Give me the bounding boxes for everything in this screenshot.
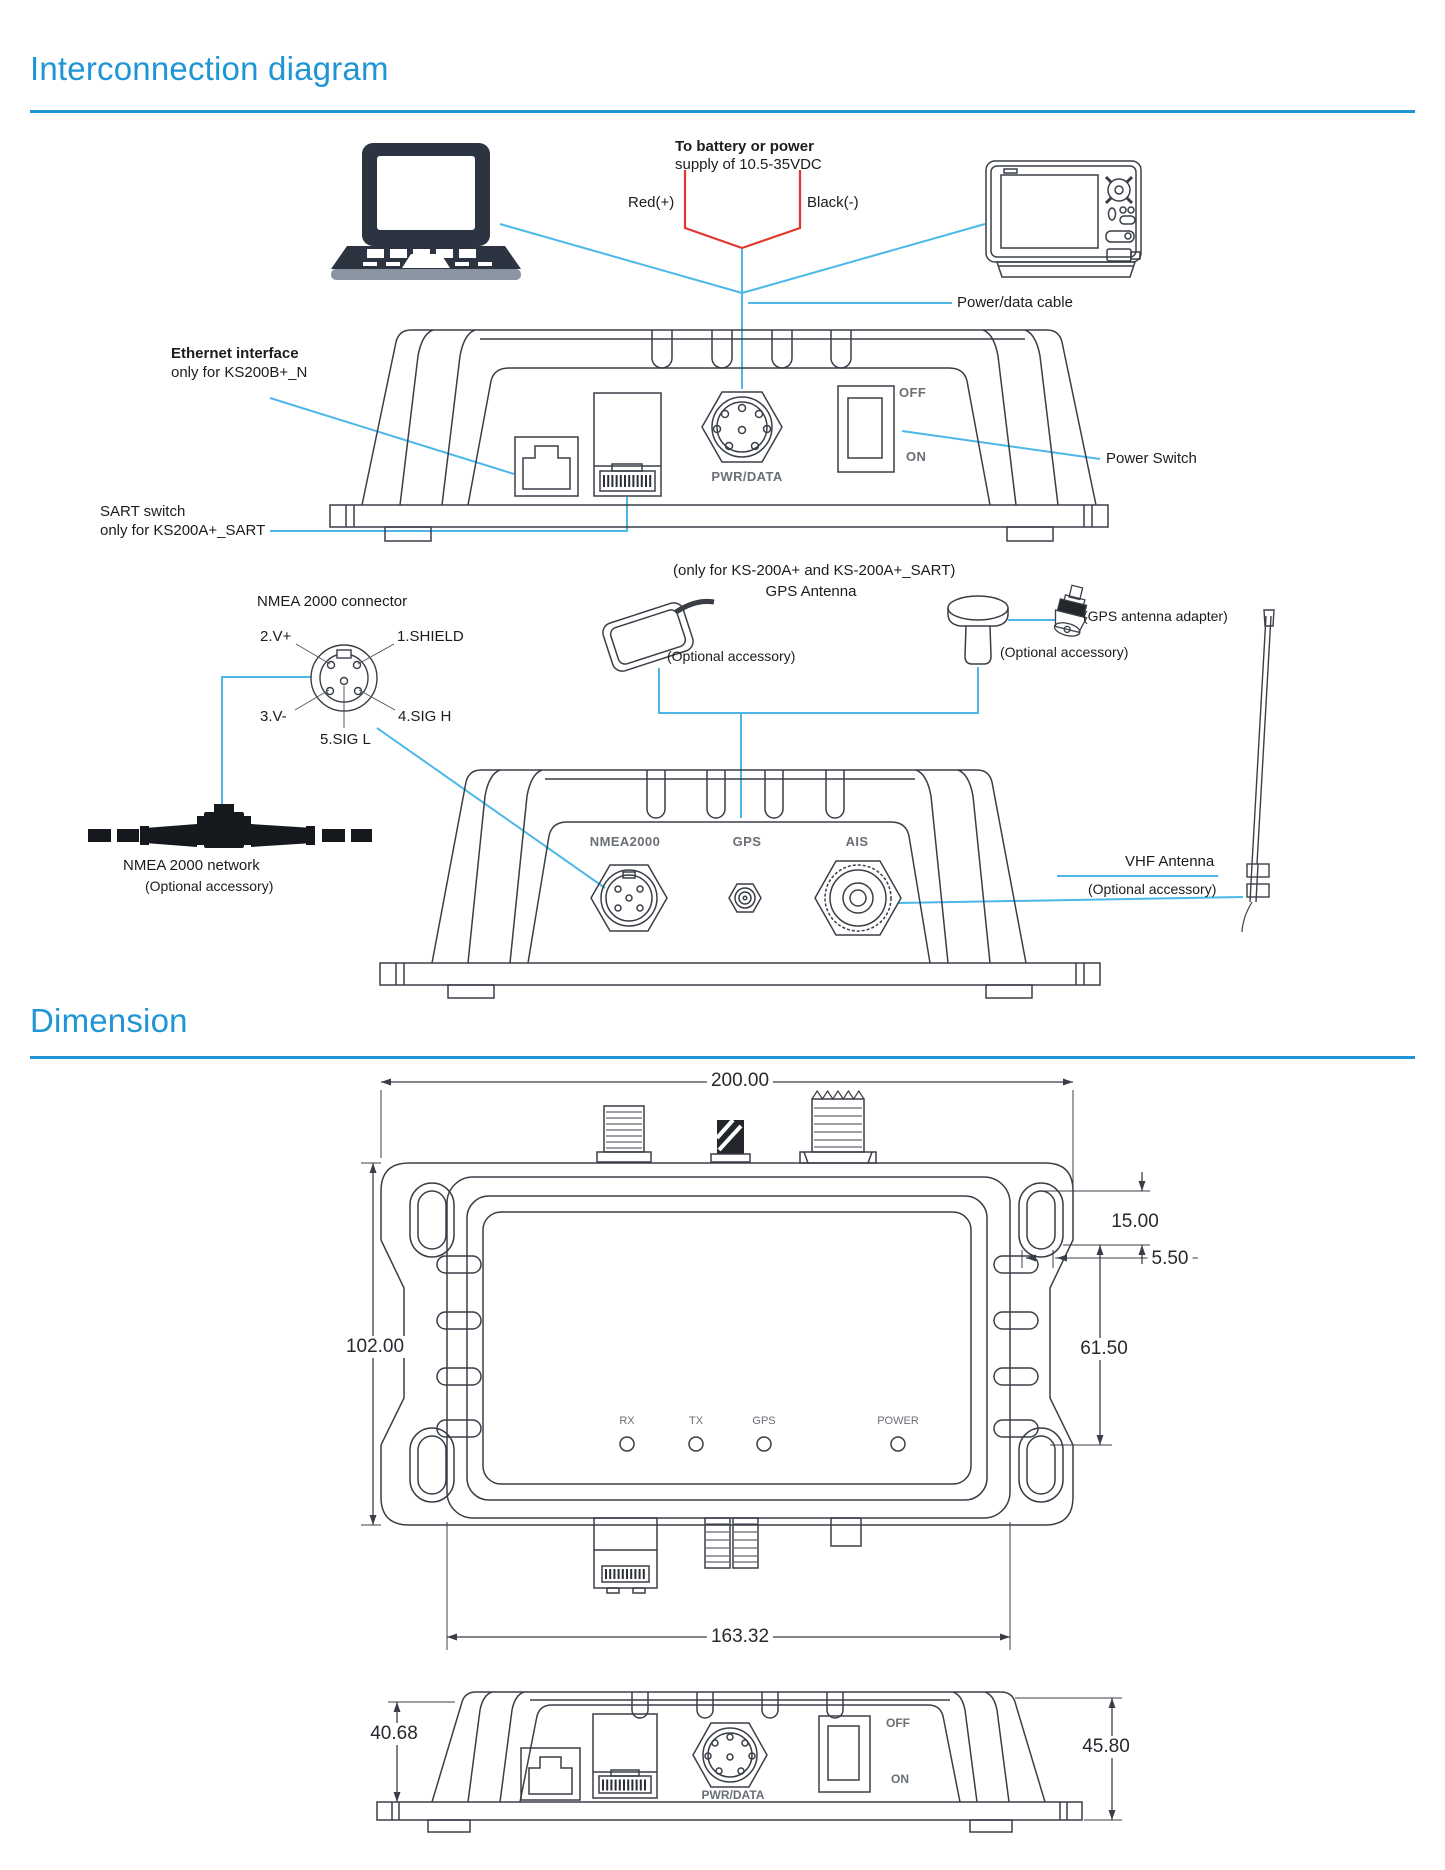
- manual-page: Interconnection diagram Dimension To bat…: [0, 0, 1445, 1870]
- heading-rule-2: [30, 1056, 1415, 1059]
- gps-antenna-title: GPS Antenna: [766, 583, 857, 600]
- laptop-icon: [331, 143, 521, 280]
- sart-label-line1: SART switch: [100, 503, 185, 520]
- led-label-gps: GPS: [752, 1415, 775, 1427]
- top-connectors: [597, 1091, 876, 1163]
- pwr-data-connector: [702, 392, 782, 462]
- vhf-antenna-title: VHF Antenna: [1125, 853, 1214, 870]
- power-wires: [685, 170, 800, 248]
- nmea2000-port: [591, 865, 667, 931]
- rear-on-label: ON: [906, 449, 926, 464]
- front-nmea2000-label: NMEA2000: [590, 834, 660, 849]
- ais-port: [815, 861, 901, 935]
- led-label-power: POWER: [877, 1415, 919, 1427]
- front-ais-label: AIS: [846, 834, 869, 849]
- gps-port: [729, 884, 761, 912]
- heading-rule-1: [30, 110, 1415, 113]
- dimension-rear-view: [377, 1692, 1122, 1832]
- nmea2000-network-icon: [88, 804, 372, 848]
- sart-label-line2: only for KS200A+_SART: [100, 522, 265, 539]
- black-wire-label: Black(-): [807, 194, 859, 211]
- chartplotter-icon: [986, 161, 1141, 277]
- power-data-cable-label: Power/data cable: [957, 294, 1073, 311]
- dim-slot-span: 61.50: [1076, 1338, 1132, 1360]
- gps-adapter-label: (GPS antenna adapter): [1083, 608, 1228, 624]
- vhf-antenna-optional: (Optional accessory): [1088, 881, 1216, 897]
- nmea-pin3-label: 3.V-: [260, 708, 287, 725]
- nmea-network-optional: (Optional accessory): [145, 878, 273, 894]
- nmea-pin2-label: 2.V+: [260, 628, 291, 645]
- power-switch-rear: [819, 1716, 870, 1792]
- device-rear-view: [330, 330, 1108, 541]
- section-title-dimension: Dimension: [30, 1002, 188, 1040]
- dim-rear-left: 40.68: [366, 1723, 422, 1745]
- nmea-pin4-label: 4.SIG H: [398, 708, 451, 725]
- dim-rear-right: 45.80: [1078, 1736, 1134, 1758]
- gps-mushroom-antenna-icon: [948, 596, 1008, 664]
- vhf-antenna-icon: [1242, 610, 1274, 932]
- rear2-off-label: OFF: [886, 1716, 910, 1730]
- pwr-data-connector-rear: [693, 1723, 767, 1787]
- ethernet-label-line1: Ethernet interface: [171, 345, 299, 362]
- dimension-front-view: [361, 1082, 1198, 1650]
- dim-bottom-width: 163.32: [707, 1626, 773, 1648]
- dimension-lines: [361, 1082, 1198, 1650]
- rear2-pwrdata-label: PWR/DATA: [702, 1788, 765, 1802]
- rear-pwrdata-label: PWR/DATA: [711, 469, 782, 484]
- power-switch-label: Power Switch: [1106, 450, 1197, 467]
- ethernet-label-line2: only for KS200B+_N: [171, 364, 307, 381]
- rear2-on-label: ON: [891, 1772, 909, 1786]
- led-label-tx: TX: [689, 1415, 703, 1427]
- patch-optional-label: (Optional accessory): [667, 648, 795, 664]
- dim-slot-offset: 5.50: [1148, 1248, 1193, 1270]
- led-label-rx: RX: [619, 1415, 634, 1427]
- bottom-connectors: [594, 1518, 861, 1593]
- nmea-pinout-title: NMEA 2000 connector: [257, 593, 407, 610]
- battery-label-line2: supply of 10.5-35VDC: [675, 156, 822, 173]
- power-switch: [838, 386, 894, 472]
- nmea-pin5-label: 5.SIG L: [320, 731, 371, 748]
- status-leds: [620, 1437, 905, 1451]
- nmea-network-title: NMEA 2000 network: [123, 857, 260, 874]
- dim-slot-height: 15.00: [1107, 1211, 1163, 1233]
- nmea-pin1-label: 1.SHIELD: [397, 628, 464, 645]
- battery-label-line1: To battery or power: [675, 138, 814, 155]
- sart-switch-panel: [594, 393, 661, 496]
- mushroom-optional-label: (Optional accessory): [1000, 644, 1128, 660]
- gps-only-for-label: (only for KS-200A+ and KS-200A+_SART): [673, 562, 955, 579]
- diagram-artwork: [0, 0, 1445, 1870]
- dim-body-height: 102.00: [342, 1336, 408, 1358]
- rear-off-label: OFF: [899, 385, 926, 400]
- red-wire-label: Red(+): [628, 194, 674, 211]
- front-gps-label: GPS: [733, 834, 762, 849]
- dim-top-width: 200.00: [707, 1070, 773, 1092]
- section-title-interconnection: Interconnection diagram: [30, 50, 389, 88]
- sart-switch-panel-rear: [593, 1714, 657, 1798]
- ethernet-port: [515, 437, 578, 496]
- nmea2000-pinout: [295, 644, 395, 728]
